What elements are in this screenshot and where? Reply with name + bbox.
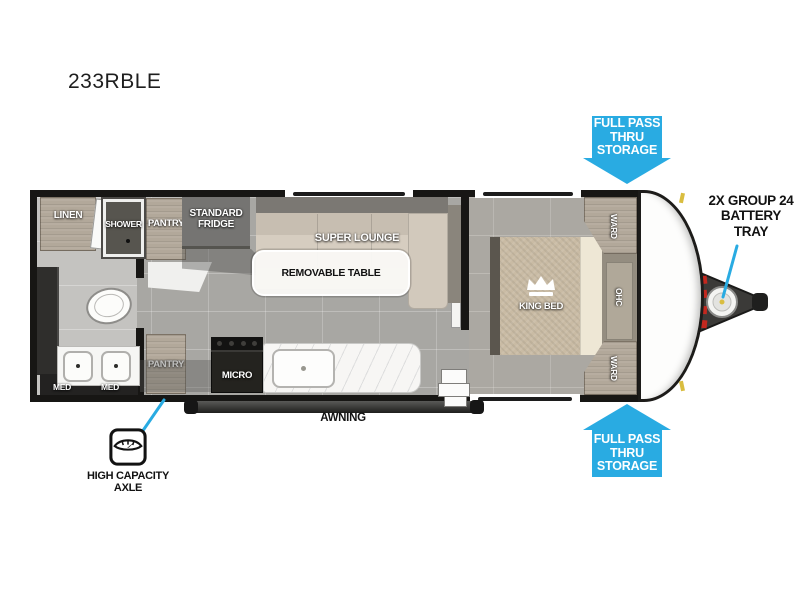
lounge-overhead-cabinet (256, 197, 448, 213)
med-cabinet-right-label: MED (98, 380, 122, 393)
arrow-down-icon (583, 158, 671, 184)
axle-callout: HIGH CAPACITY AXLE (86, 468, 170, 496)
entry-step-outer (444, 396, 467, 407)
entry-step-upper (441, 369, 467, 384)
burner-4 (252, 341, 257, 346)
burner-3 (241, 341, 246, 346)
med-cabinet-left-label: MED (50, 380, 74, 393)
storage-callout-top: FULL PASS THRU STORAGE (592, 116, 662, 159)
burner-2 (229, 341, 234, 346)
burner-1 (217, 341, 222, 346)
lounge-chaise (408, 213, 448, 309)
counter-shadow (140, 360, 214, 392)
bed-pillow-area (580, 237, 603, 355)
window-bedroom-bottom-glass (478, 397, 572, 401)
coupler (752, 293, 768, 311)
sink-drain (301, 366, 306, 371)
removable-table-label: REMOVABLE TABLE (282, 267, 381, 279)
wardrobe-bottom-label: WARD (606, 344, 622, 392)
crown-icon (523, 275, 559, 299)
tongue-a-frame (696, 262, 770, 342)
king-bed-label: KING BED (505, 300, 577, 313)
faucet-right (114, 364, 118, 368)
floorplan-canvas: 233RBLE LINEN SHOWER MED MED PANTRY STAN… (0, 0, 800, 600)
window-bedroom-top-glass (483, 192, 573, 196)
awning-cap-left (184, 400, 198, 414)
refrigerator-label: STANDARD FRIDGE (184, 203, 248, 235)
entry-step-lower (438, 383, 470, 397)
clearance-light-bottom (679, 381, 685, 392)
wardrobe-top-label: WARD (606, 201, 622, 251)
micro-label: MICRO (211, 369, 263, 382)
faucet-left (76, 364, 80, 368)
awning-label: AWNING (312, 411, 374, 425)
linen-label: LINEN (40, 208, 96, 222)
clearance-light-top (679, 193, 685, 204)
bed-foot-board (490, 237, 500, 355)
arrow-up-icon (583, 404, 671, 430)
battery-tray-callout: 2X GROUP 24 BATTERY TRAY (702, 191, 800, 241)
shower-drain (126, 239, 130, 243)
front-cap-pass-thru (638, 190, 704, 402)
window-lounge-top-glass (293, 192, 405, 196)
linen-cabinet (40, 197, 96, 251)
ohc-label: OHC (611, 276, 627, 318)
storage-callout-bottom: FULL PASS THRU STORAGE (592, 430, 662, 477)
bedroom-wall (461, 197, 469, 330)
bedroom-wall-cabinet-face (451, 300, 461, 328)
rear-wall-panel (37, 267, 59, 375)
super-lounge-label: SUPER LOUNGE (292, 230, 422, 246)
awning-cap-right (470, 400, 484, 414)
model-number: 233RBLE (68, 70, 228, 94)
shower-label: SHOWER (99, 217, 148, 230)
lounge-side-cabinet (448, 205, 461, 303)
scale-icon (109, 428, 147, 466)
removable-table: REMOVABLE TABLE (252, 250, 410, 296)
